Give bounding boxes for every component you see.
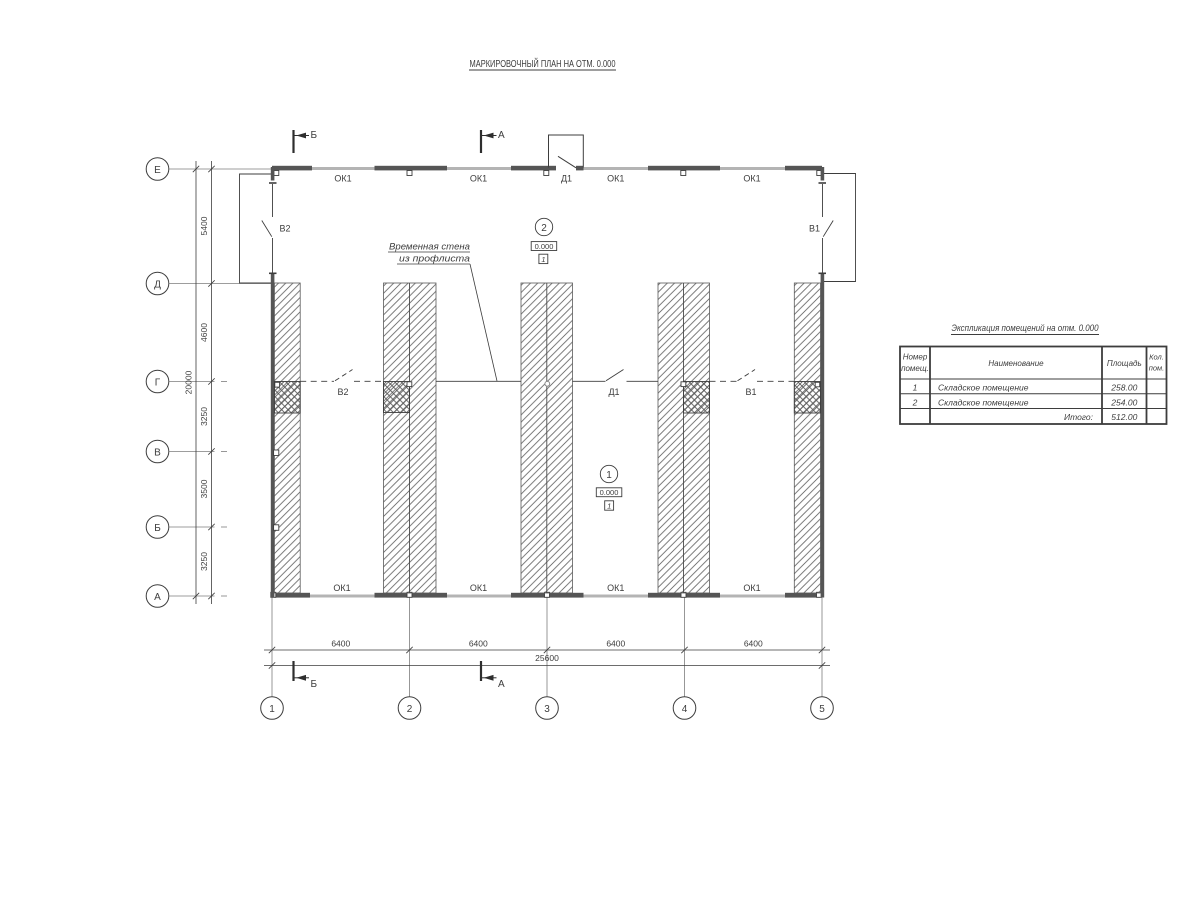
svg-text:из профлиста: из профлиста — [399, 254, 470, 265]
svg-text:Б: Б — [154, 523, 161, 534]
svg-text:Д1: Д1 — [608, 387, 619, 397]
svg-text:Площадь: Площадь — [1107, 359, 1142, 368]
svg-text:2: 2 — [541, 223, 547, 234]
svg-text:Итого:: Итого: — [1064, 412, 1094, 422]
svg-text:Наименование: Наименование — [988, 359, 1044, 368]
svg-text:Экспликация помещений на отм.: Экспликация помещений на отм. 0.000 — [952, 323, 1099, 333]
svg-text:ОК1: ОК1 — [470, 174, 487, 184]
svg-text:6400: 6400 — [331, 639, 350, 649]
svg-text:1: 1 — [541, 255, 545, 264]
svg-text:Д1: Д1 — [561, 174, 572, 184]
svg-text:258.00: 258.00 — [1110, 383, 1137, 393]
svg-text:ОК1: ОК1 — [470, 583, 487, 593]
svg-text:3250: 3250 — [199, 552, 209, 571]
svg-text:512.00: 512.00 — [1111, 412, 1137, 422]
svg-text:Е: Е — [154, 165, 161, 176]
svg-text:3: 3 — [544, 704, 550, 715]
svg-text:Б: Б — [311, 679, 318, 690]
svg-text:1: 1 — [913, 383, 918, 393]
svg-text:ОК1: ОК1 — [334, 174, 351, 184]
svg-text:пом.: пом. — [1149, 364, 1165, 373]
svg-text:ОК1: ОК1 — [607, 174, 624, 184]
svg-text:А: А — [498, 679, 505, 690]
svg-text:Б: Б — [311, 130, 318, 141]
svg-text:Временная стена: Временная стена — [389, 242, 470, 253]
svg-text:В: В — [154, 447, 161, 458]
svg-text:Складское помещение: Складское помещение — [938, 383, 1029, 393]
svg-text:2: 2 — [912, 397, 918, 407]
svg-text:Г: Г — [155, 377, 161, 388]
svg-text:Кол.: Кол. — [1149, 353, 1164, 362]
svg-text:В2: В2 — [337, 387, 348, 397]
svg-text:0.000: 0.000 — [600, 488, 619, 497]
svg-text:А: А — [498, 130, 505, 141]
svg-text:1: 1 — [606, 470, 612, 481]
svg-text:20000: 20000 — [184, 370, 194, 394]
svg-text:2: 2 — [407, 704, 413, 715]
svg-text:1: 1 — [607, 501, 611, 510]
svg-text:1: 1 — [269, 704, 275, 715]
svg-text:В1: В1 — [745, 387, 756, 397]
svg-text:Номер: Номер — [903, 353, 928, 362]
svg-text:Д: Д — [154, 279, 161, 290]
svg-text:В2: В2 — [280, 224, 291, 234]
svg-text:А: А — [154, 592, 161, 603]
svg-text:МАРКИРОВОЧНЫЙ ПЛАН НА ОТМ. 0.0: МАРКИРОВОЧНЫЙ ПЛАН НА ОТМ. 0.000 — [470, 58, 616, 70]
svg-text:4: 4 — [682, 704, 688, 715]
svg-text:0.000: 0.000 — [535, 242, 554, 251]
svg-text:Складское помещение: Складское помещение — [938, 397, 1029, 407]
svg-text:ОК1: ОК1 — [607, 583, 624, 593]
svg-text:ОК1: ОК1 — [333, 583, 350, 593]
svg-text:ОК1: ОК1 — [743, 174, 760, 184]
svg-text:4600: 4600 — [199, 323, 209, 342]
svg-text:ОК1: ОК1 — [743, 583, 760, 593]
svg-text:6400: 6400 — [469, 639, 488, 649]
svg-text:3250: 3250 — [199, 407, 209, 426]
svg-text:помещ.: помещ. — [901, 364, 929, 373]
svg-text:3500: 3500 — [199, 479, 209, 498]
svg-text:254.00: 254.00 — [1110, 397, 1137, 407]
svg-text:5: 5 — [819, 704, 825, 715]
svg-text:25600: 25600 — [535, 653, 559, 663]
svg-text:6400: 6400 — [744, 639, 763, 649]
svg-text:6400: 6400 — [606, 639, 625, 649]
svg-text:В1: В1 — [809, 224, 820, 234]
svg-text:5400: 5400 — [199, 216, 209, 235]
